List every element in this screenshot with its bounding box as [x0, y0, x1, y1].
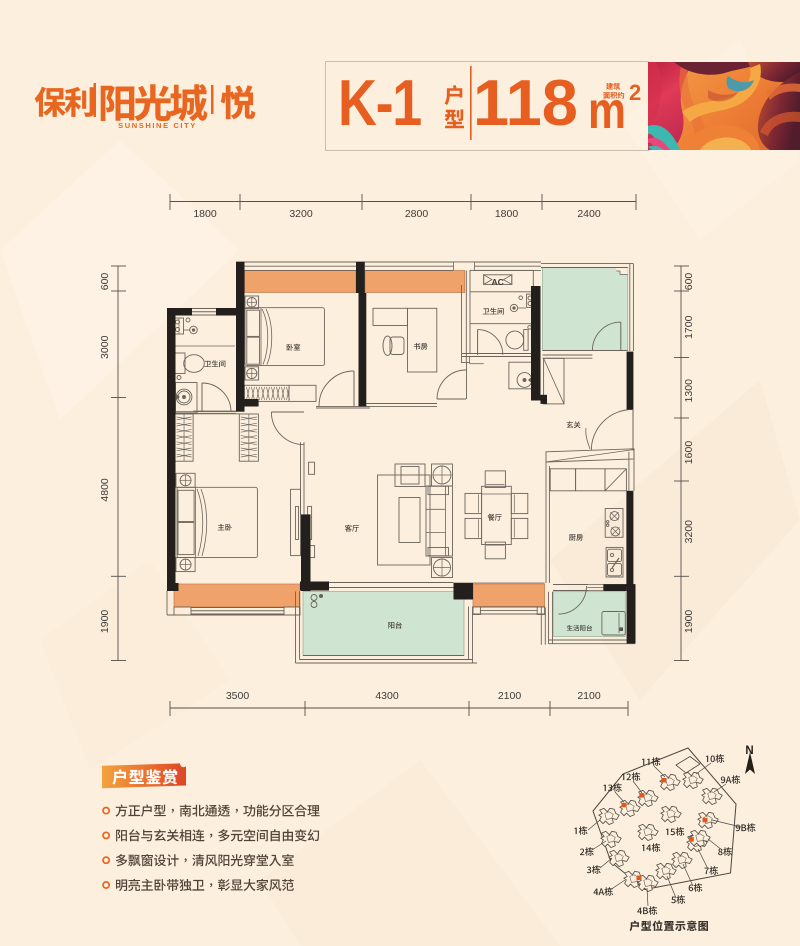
svg-text:1700: 1700	[683, 315, 695, 339]
svg-text:N: N	[745, 745, 753, 757]
svg-text:AC: AC	[492, 277, 504, 287]
svg-text:3000: 3000	[99, 335, 111, 359]
svg-text:3500: 3500	[226, 690, 250, 702]
svg-text:600: 600	[99, 273, 111, 291]
svg-text:600: 600	[683, 273, 695, 291]
svg-text:4300: 4300	[375, 690, 399, 702]
svg-text:1900: 1900	[99, 610, 111, 634]
svg-text:4800: 4800	[99, 478, 111, 502]
svg-text:2100: 2100	[577, 690, 601, 702]
svg-text:1300: 1300	[683, 379, 695, 403]
svg-text:3200: 3200	[289, 208, 313, 220]
svg-text:1800: 1800	[495, 208, 519, 220]
svg-text:2400: 2400	[577, 208, 601, 220]
svg-text:1900: 1900	[683, 610, 695, 634]
svg-text:2100: 2100	[498, 690, 522, 702]
svg-text:2800: 2800	[405, 208, 429, 220]
svg-text:3200: 3200	[683, 520, 695, 544]
svg-text:1600: 1600	[683, 441, 695, 465]
svg-text:1800: 1800	[193, 208, 217, 220]
